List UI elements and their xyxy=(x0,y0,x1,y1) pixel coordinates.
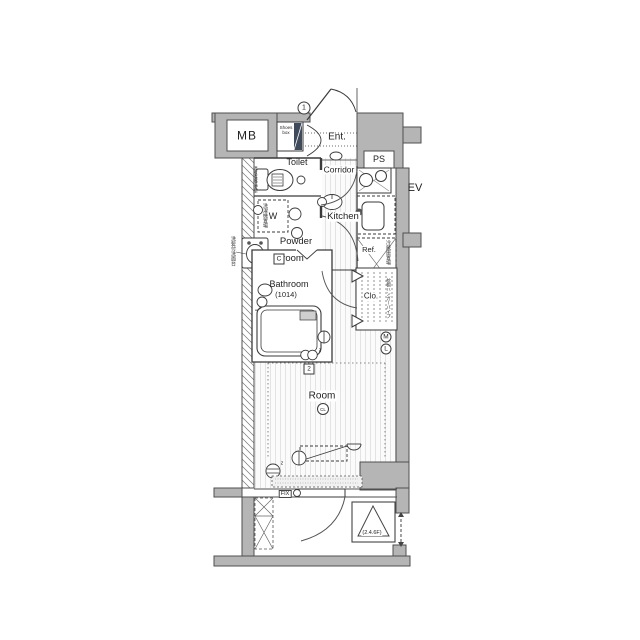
toilet-note: 温水洗浄便座 xyxy=(253,166,258,193)
fridge-note: 冷蔵庫置場 xyxy=(385,240,390,265)
bathroom-fixtures xyxy=(252,250,332,362)
label-fix-window: FIX xyxy=(279,490,292,498)
entrance-area xyxy=(277,88,357,160)
outlet-z-mark: z xyxy=(281,461,284,467)
outlet-z-mark: z xyxy=(319,348,322,354)
label-powder-line1: Powder xyxy=(280,237,312,247)
washer-note: 洗濯機置場 xyxy=(262,203,267,228)
label-entrance: Ent. xyxy=(328,132,346,143)
label-room: Room xyxy=(308,391,337,402)
circled-1-symbol: 1 xyxy=(298,102,311,115)
label-bathroom-size: (1014) xyxy=(275,291,297,299)
label-kitchen: Kitchen xyxy=(326,212,360,222)
label-corridor: Corridor xyxy=(323,165,356,174)
label-powder-line2: room xyxy=(282,254,304,264)
label-washer: W xyxy=(269,212,278,222)
label-meter-box: MB xyxy=(237,129,257,142)
label-toilet: Toilet xyxy=(286,158,307,168)
vanity-note: 洗髪付洗面台 xyxy=(230,236,235,266)
label-refrigerator: Ref. xyxy=(361,246,377,254)
label-shoes-box: Shoes box xyxy=(278,126,294,136)
circled-l-symbol: L xyxy=(381,344,392,355)
label-bathroom: Bathroom xyxy=(269,280,308,290)
closet-note: 枕棚ハンガーパイプ xyxy=(386,278,391,319)
label-pipe-space: PS xyxy=(373,155,385,165)
circled-m-symbol: M xyxy=(381,332,392,343)
label-elevator: EV xyxy=(408,182,423,194)
balcony xyxy=(254,489,404,549)
ceiling-light-symbol: CL xyxy=(317,403,329,415)
floorplan: MB Shoes box Ent. Toilet Corridor PS EV … xyxy=(0,0,640,640)
boxed-2-symbol: 2 xyxy=(304,364,315,375)
floorplan-drawing xyxy=(0,0,640,640)
boxed-c-symbol: C xyxy=(274,254,285,265)
label-closet: Clo. xyxy=(363,293,379,302)
label-evacuation-hatch-floors: (2.4.6F) xyxy=(361,530,382,536)
